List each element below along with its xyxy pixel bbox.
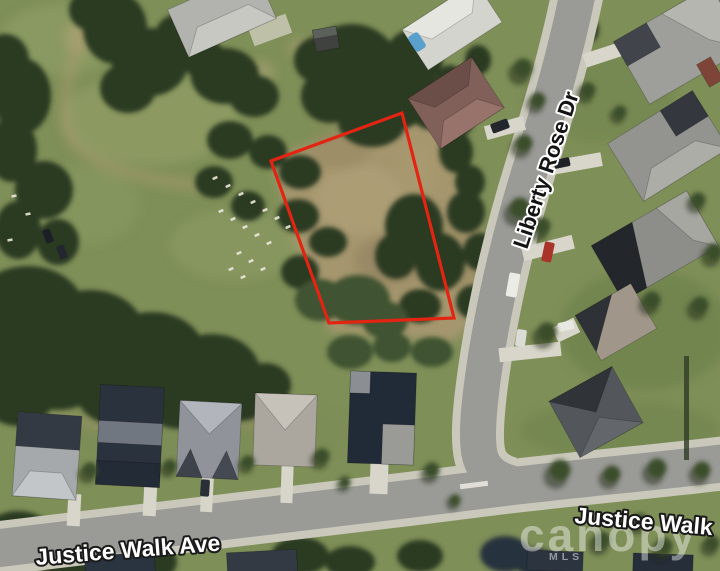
hedge-line: [684, 356, 689, 460]
shed-roof: [312, 26, 339, 52]
aerial-scene: canopy MLS Liberty Rose Dr Justice Walk …: [0, 0, 720, 571]
house-roof: [176, 400, 242, 479]
house-roof: [347, 371, 416, 465]
aerial-map-screenshot: canopy MLS Liberty Rose Dr Justice Walk …: [0, 0, 720, 571]
house-roof: [12, 412, 82, 500]
watermark-sub: MLS: [549, 551, 583, 563]
house-roof: [95, 384, 164, 487]
house-roof-partial: [226, 549, 297, 571]
house-roof: [253, 393, 317, 467]
